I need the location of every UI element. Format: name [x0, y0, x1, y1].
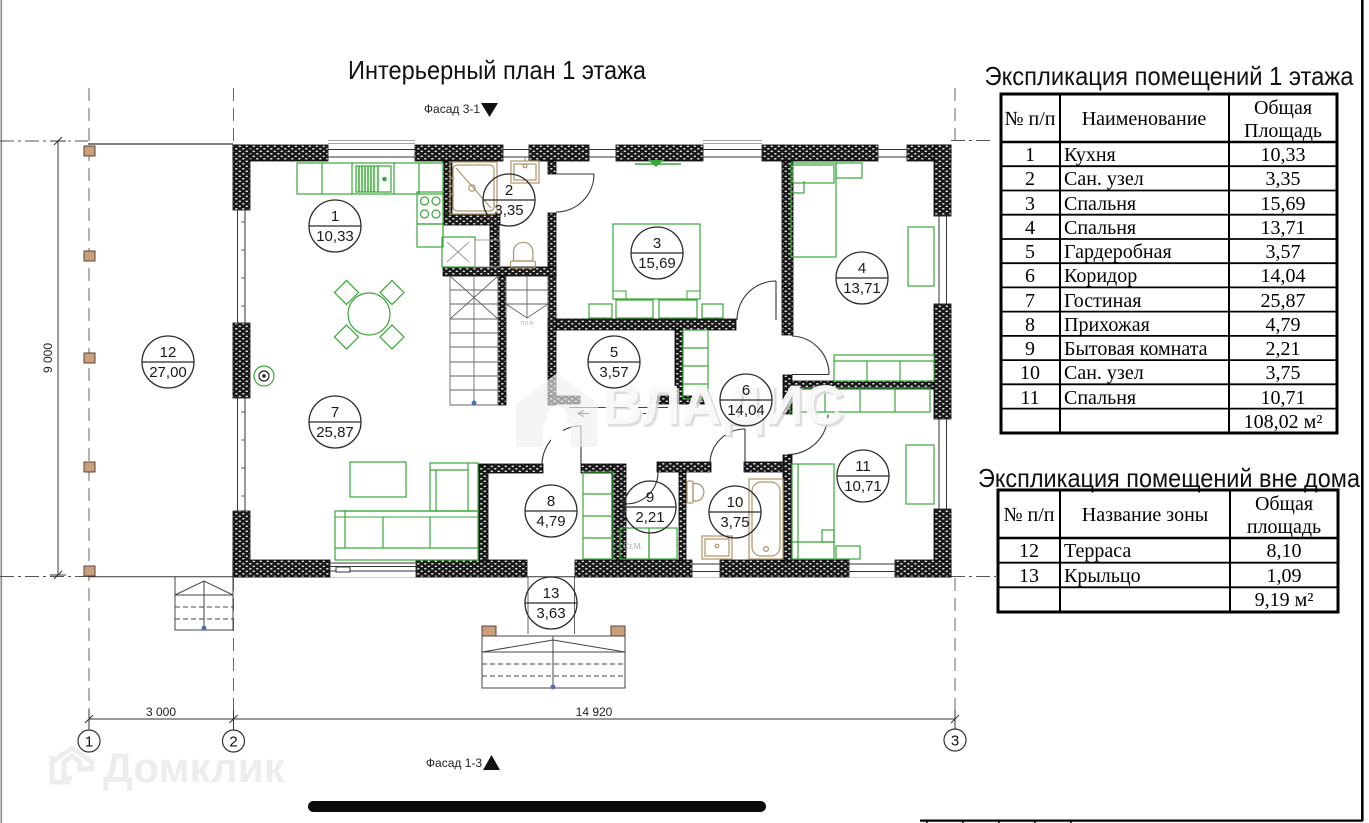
svg-text:5: 5 — [1025, 241, 1035, 263]
svg-text:14,04: 14,04 — [1261, 265, 1306, 287]
svg-text:3: 3 — [1025, 193, 1035, 215]
svg-text:3: 3 — [951, 733, 959, 750]
svg-text:10,71: 10,71 — [844, 478, 882, 495]
svg-text:3,75: 3,75 — [1266, 362, 1301, 384]
svg-text:Домклик: Домклик — [103, 744, 286, 791]
svg-text:Сан. узел: Сан. узел — [1064, 362, 1144, 384]
svg-text:8: 8 — [1025, 314, 1035, 336]
svg-text:11: 11 — [1020, 387, 1039, 409]
svg-text:6: 6 — [1025, 265, 1035, 287]
svg-text:Ст.М.: Ст.М. — [623, 542, 643, 551]
svg-text:9 000: 9 000 — [41, 343, 55, 373]
svg-text:1: 1 — [1025, 144, 1035, 166]
svg-text:Спальня: Спальня — [1064, 217, 1136, 239]
svg-text:Терраса: Терраса — [1064, 540, 1131, 562]
svg-text:10,33: 10,33 — [316, 228, 354, 245]
svg-text:4: 4 — [1025, 217, 1035, 239]
svg-text:25,87: 25,87 — [316, 424, 354, 441]
svg-text:Площадь: Площадь — [1244, 120, 1322, 142]
svg-text:10,33: 10,33 — [1261, 144, 1306, 166]
svg-text:6: 6 — [742, 382, 750, 399]
svg-text:15,69: 15,69 — [1261, 193, 1306, 215]
svg-text:27,00: 27,00 — [149, 364, 187, 381]
svg-text:4,79: 4,79 — [1266, 314, 1301, 336]
svg-text:Гардеробная: Гардеробная — [1064, 241, 1172, 263]
svg-text:4: 4 — [858, 260, 866, 277]
svg-text:3,75: 3,75 — [720, 514, 749, 531]
svg-text:2: 2 — [1025, 168, 1035, 190]
svg-text:Фасад 1-3: Фасад 1-3 — [426, 756, 482, 770]
svg-text:8: 8 — [547, 493, 555, 510]
svg-text:Наименование: Наименование — [1082, 108, 1207, 130]
svg-text:11: 11 — [855, 458, 871, 475]
svg-text:13: 13 — [543, 585, 560, 602]
svg-text:Крыльцо: Крыльцо — [1064, 565, 1141, 587]
svg-text:Прихожая: Прихожая — [1064, 314, 1150, 336]
svg-text:ВЛАДИС: ВЛАДИС — [602, 373, 844, 436]
svg-text:3 000: 3 000 — [146, 705, 176, 719]
svg-text:7: 7 — [1025, 290, 1035, 312]
svg-text:13: 13 — [1019, 565, 1039, 587]
svg-text:4,79: 4,79 — [536, 513, 565, 530]
svg-text:13,71: 13,71 — [1261, 217, 1306, 239]
svg-text:Спальня: Спальня — [1064, 193, 1136, 215]
svg-text:Общая: Общая — [1254, 97, 1312, 119]
svg-text:2,21: 2,21 — [635, 509, 664, 526]
svg-text:10,71: 10,71 — [1261, 387, 1306, 409]
svg-text:108,02 м²: 108,02 м² — [1244, 411, 1323, 433]
svg-text:Название зоны: Название зоны — [1082, 504, 1208, 526]
svg-text:Спальня: Спальня — [1064, 387, 1136, 409]
svg-text:2,21: 2,21 — [1266, 338, 1301, 360]
svg-text:Кухня: Кухня — [1064, 144, 1116, 166]
svg-text:14 920: 14 920 — [576, 705, 613, 719]
svg-text:3,57: 3,57 — [1266, 241, 1301, 263]
svg-text:3,35: 3,35 — [494, 202, 523, 219]
svg-text:1: 1 — [331, 208, 339, 225]
svg-text:Экспликация помещений 1 этажа: Экспликация помещений 1 этажа — [985, 61, 1354, 91]
svg-text:площадь: площадь — [1247, 516, 1321, 538]
svg-text:9: 9 — [1025, 338, 1035, 360]
svg-text:Общая: Общая — [1255, 493, 1313, 515]
svg-text:13,71: 13,71 — [843, 280, 881, 297]
svg-text:15,69: 15,69 — [638, 255, 676, 272]
svg-text:3,57: 3,57 — [599, 364, 628, 381]
svg-text:1: 1 — [85, 734, 93, 751]
svg-text:3,35: 3,35 — [1266, 168, 1301, 190]
svg-text:№ п/п: № п/п — [1004, 108, 1055, 130]
svg-text:Интерьерный план 1 этажа: Интерьерный план 1 этажа — [348, 55, 646, 85]
svg-text:12: 12 — [1019, 540, 1039, 562]
svg-text:9,19 м²: 9,19 м² — [1255, 589, 1314, 611]
svg-text:Фасад 3-1: Фасад 3-1 — [424, 102, 480, 116]
svg-text:3: 3 — [653, 235, 661, 252]
svg-text:8,10: 8,10 — [1267, 540, 1302, 562]
svg-text:Сан. узел: Сан. узел — [1064, 168, 1144, 190]
svg-text:7: 7 — [331, 404, 339, 421]
svg-text:25,87: 25,87 — [1261, 290, 1306, 312]
svg-text:Гостиная: Гостиная — [1064, 290, 1141, 312]
svg-text:Бытовая комната: Бытовая комната — [1064, 338, 1208, 360]
svg-text:ПЛ-В: ПЛ-В — [520, 321, 533, 327]
svg-text:3,63: 3,63 — [536, 605, 565, 622]
svg-text:10: 10 — [727, 494, 744, 511]
svg-text:Коридор: Коридор — [1064, 265, 1137, 287]
svg-text:9: 9 — [646, 489, 654, 506]
svg-text:12: 12 — [160, 344, 177, 361]
svg-text:14,04: 14,04 — [727, 402, 765, 419]
svg-text:№ п/п: № п/п — [1003, 504, 1054, 526]
svg-text:1,09: 1,09 — [1267, 565, 1302, 587]
svg-text:10: 10 — [1020, 362, 1040, 384]
svg-text:5: 5 — [610, 344, 618, 361]
svg-text:2: 2 — [505, 182, 513, 199]
